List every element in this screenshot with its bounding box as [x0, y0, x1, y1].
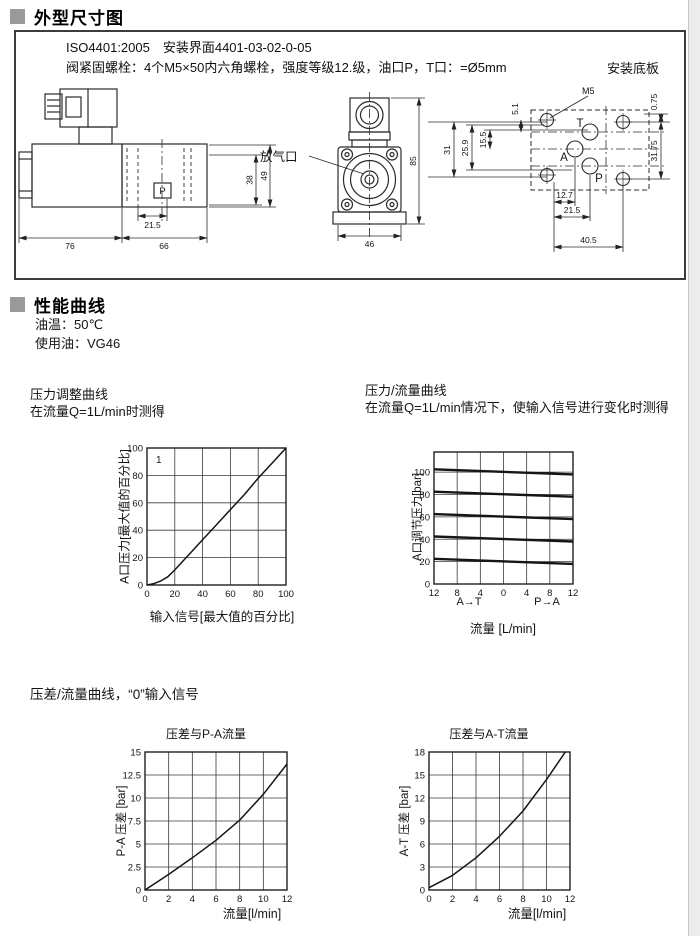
x-tick-label: 2: [450, 894, 455, 905]
dim-0-75-label: 0.75: [649, 93, 659, 110]
pressure-adjustment-chart: 0204060801000204060801001: [105, 437, 305, 602]
chart-series-line: [147, 448, 286, 585]
dim-40-5-label: 40.5: [580, 235, 597, 245]
thread-m5-leader-line: [550, 96, 588, 118]
dimension-drawing-box: ISO4401:2005 安装界面4401-03-02-0-05 阀紧固螺栓：4…: [14, 30, 686, 280]
y-tick-label: 40: [132, 526, 143, 537]
dim-49-label: 49: [259, 171, 269, 181]
y-tick-label: 0: [138, 581, 143, 592]
spec-line-2: 阀紧固螺栓：4个M5×50内六角螺栓，强度等级12.级，油口P，T口：=Ø5mm: [66, 58, 507, 78]
y-tick-label: 0: [420, 886, 425, 897]
spec-lines: ISO4401:2005 安装界面4401-03-02-0-05 阀紧固螺栓：4…: [66, 38, 507, 78]
x-tick-label: 80: [253, 589, 264, 600]
section-performance-title: 性能曲线: [34, 292, 106, 317]
dim-21-5-side-label: 21.5: [144, 220, 161, 230]
chart1-ylabel: A口压力[最大值的百分比]: [116, 432, 133, 602]
chart2-direction-left: A→T: [439, 596, 499, 608]
subplate-label: 安装底板: [607, 61, 659, 76]
chart1-xlabel: 输入信号[最大值的百分比]: [122, 606, 322, 625]
y-tick-label: 9: [420, 817, 425, 828]
dim-31-75-label: 31.75: [649, 140, 659, 162]
y-tick-label: 15: [414, 771, 425, 782]
side-view-port-p-label: P: [159, 186, 165, 197]
plate-port-a-label: A: [560, 152, 568, 164]
chart2-subtitle: 在流量Q=1L/min情况下，使输入信号进行变化时测得: [365, 397, 669, 416]
plot-corner-label: 1: [156, 455, 162, 466]
x-tick-label: 2: [166, 894, 171, 905]
dim-21-5-plate-label: 21.5: [564, 205, 581, 215]
dim-5-1-label: 5.1: [510, 103, 520, 115]
dim-12-7-label: 12.7: [556, 190, 573, 200]
dp-at-flow-chart: 0246810120369121518: [387, 741, 587, 906]
oil-temp-note: 油温：50℃: [35, 315, 103, 335]
dim-31-label: 31: [442, 145, 452, 155]
dim-15-5-label: 15.5: [478, 131, 488, 148]
y-tick-label: 6: [420, 840, 425, 851]
x-tick-label: 0: [426, 894, 431, 905]
chart4-title: 压差与A-T流量: [419, 725, 559, 742]
dp-section-header: 压差/流量曲线，“0”输入信号: [30, 683, 199, 703]
section-marker-icon: [10, 9, 25, 24]
plate-hole-crosshairs: [538, 111, 632, 188]
section-dimensions-header: 外型尺寸图: [10, 4, 124, 29]
y-tick-label: 18: [414, 748, 425, 759]
dim-46-label: 46: [365, 239, 375, 249]
page-edge: [688, 0, 700, 936]
side-view-outline: [19, 89, 207, 207]
dim-25-9-label: 25.9: [460, 139, 470, 156]
bleed-port-label: 放气口: [260, 149, 298, 164]
chart3-xlabel: 流量[l/min]: [192, 903, 312, 922]
x-tick-label: 40: [197, 589, 208, 600]
y-tick-label: 15: [130, 748, 141, 759]
y-tick-label: 0: [136, 886, 141, 897]
y-tick-label: 20: [132, 553, 143, 564]
x-tick-label: 0: [142, 894, 147, 905]
y-tick-label: 12: [414, 794, 425, 805]
dim-66-label: 66: [159, 241, 169, 251]
spec-line-1: ISO4401:2005 安装界面4401-03-02-0-05: [66, 38, 507, 58]
dp-pa-flow-chart: 02468101202.557.51012.515: [103, 741, 303, 906]
x-tick-label: 60: [225, 589, 236, 600]
y-tick-label: 7.5: [128, 817, 141, 828]
chart4-ylabel: A-T 压差 [bar]: [396, 756, 412, 886]
x-tick-label: 0: [501, 588, 506, 599]
chart3-title: 压差与P-A流量: [136, 725, 276, 742]
y-tick-label: 3: [420, 863, 425, 874]
dim-38-label: 38: [245, 175, 255, 185]
chart2-direction-right: P→A: [517, 596, 577, 608]
plate-dimensions: [428, 114, 670, 252]
bleed-port-leader-line: [309, 156, 364, 174]
x-tick-label: 12: [429, 588, 440, 599]
oil-used-note: 使用油：VG46: [35, 334, 120, 354]
x-tick-label: 0: [144, 589, 149, 600]
section-dimensions-title: 外型尺寸图: [34, 4, 124, 29]
plate-port-t-label: T: [576, 118, 583, 130]
y-tick-label: 60: [132, 498, 143, 509]
dim-85-label: 85: [408, 156, 418, 166]
chart1-subtitle: 在流量Q=1L/min时测得: [30, 401, 165, 420]
y-tick-label: 10: [130, 794, 141, 805]
dim-76-label: 76: [65, 241, 75, 251]
plot-frame: [147, 448, 286, 585]
chart4-xlabel: 流量[l/min]: [477, 903, 597, 922]
x-tick-label: 20: [170, 589, 181, 600]
y-tick-label: 0: [425, 580, 430, 591]
chart3-ylabel: P-A 压差 [bar]: [113, 756, 129, 886]
chart2-xlabel: 流量 [L/min]: [443, 618, 563, 637]
x-tick-label: 100: [278, 589, 294, 600]
plate-port-p-label: P: [595, 173, 603, 185]
thread-m5-label: M5: [582, 86, 595, 96]
y-tick-label: 2.5: [128, 863, 141, 874]
y-tick-label: 80: [132, 471, 143, 482]
y-tick-label: 5: [136, 840, 141, 851]
section-marker-icon: [10, 297, 25, 312]
section-performance-header: 性能曲线: [10, 292, 106, 317]
chart2-ylabel: A口调节压力[bar]: [409, 447, 425, 587]
